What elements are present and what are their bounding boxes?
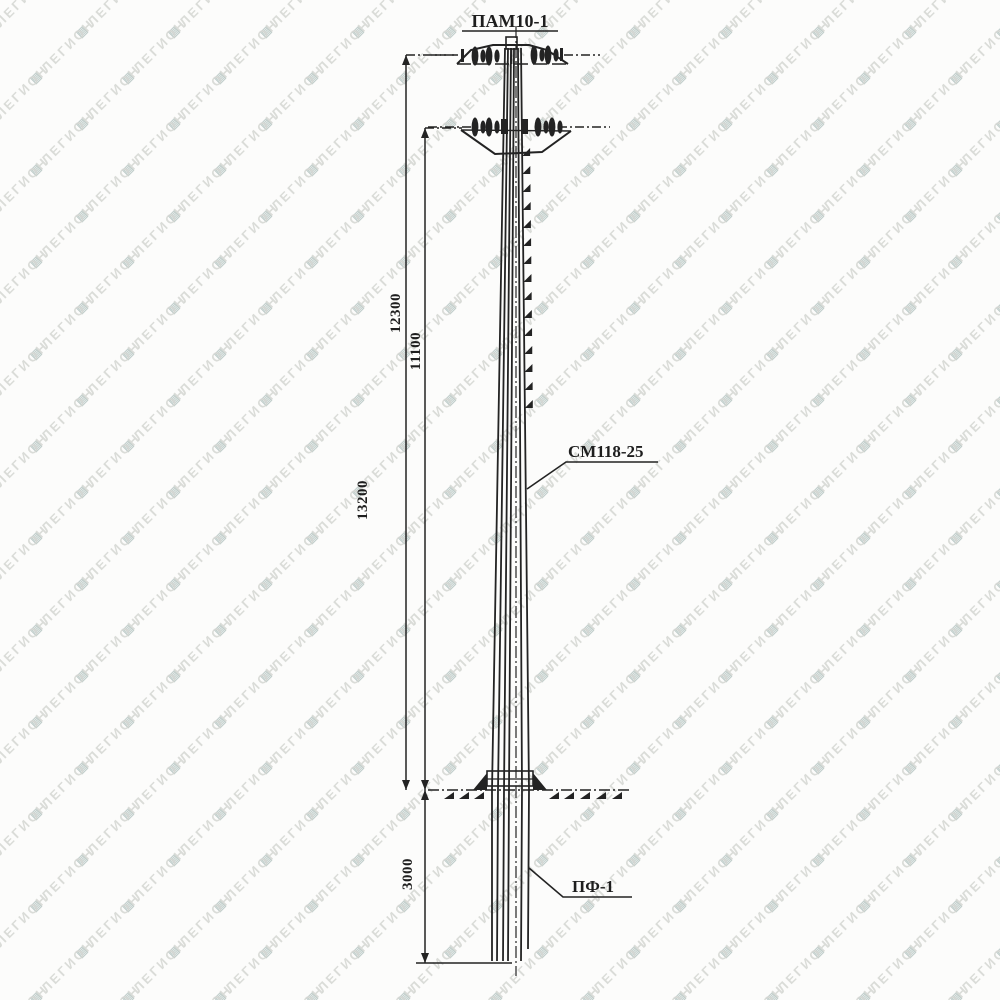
insulator-icon (472, 118, 486, 137)
arrow-up (421, 128, 429, 138)
pole-type-label: СМ118-25 (568, 442, 644, 461)
end-fitting (461, 49, 464, 62)
collar-wedge-right (533, 773, 547, 790)
step-bolt (523, 256, 531, 264)
step-bolt (522, 166, 530, 174)
insulator-icon (486, 47, 500, 66)
end-fitting (560, 48, 563, 61)
step-bolt (524, 328, 532, 336)
top-crossarm-label: ПАМ10-1 (472, 11, 549, 31)
insulator-icon (486, 118, 500, 137)
ground-hatch-tick (474, 792, 484, 799)
pole-line (518, 48, 522, 961)
step-bolt (524, 346, 532, 354)
arrow-down (421, 780, 429, 790)
insulator-icon (549, 118, 563, 137)
dim-text-11100: 11100 (408, 332, 424, 370)
step-bolt (523, 220, 531, 228)
step-bolt (523, 202, 531, 210)
step-bolt (524, 292, 532, 300)
ground-hatch-tick (564, 792, 574, 799)
ground-hatch-tick (444, 792, 454, 799)
pole-drawing: ПАМ10-1 СМ118-25 ПФ-1 12300 11100 13200 … (0, 0, 1000, 1000)
collar-wedge-left (473, 773, 487, 790)
arrow-down (421, 953, 429, 963)
step-bolt (524, 310, 532, 318)
clamp (501, 119, 508, 134)
insulator-icon (472, 47, 486, 66)
dim-text-12300: 12300 (388, 293, 404, 333)
clamp (521, 119, 528, 134)
ground-hatch-tick (580, 792, 590, 799)
ground-hatch-tick (612, 792, 622, 799)
step-bolt (525, 382, 533, 390)
dim-text-13200: 13200 (355, 480, 371, 520)
leaders (462, 31, 658, 897)
step-bolt (525, 400, 533, 408)
ground-level (428, 771, 632, 799)
foundation-label: ПФ-1 (572, 877, 614, 896)
pole-body (492, 26, 529, 976)
pin-cap (506, 37, 517, 49)
ground-hatch-tick (459, 792, 469, 799)
insulator-icon (545, 46, 559, 65)
arrow-up (402, 55, 410, 65)
step-bolt (523, 184, 531, 192)
insulator-icon (535, 118, 549, 137)
ground-hatch-tick (596, 792, 606, 799)
step-bolt (524, 364, 532, 372)
arrow-up (421, 790, 429, 800)
arrow-down (402, 780, 410, 790)
step-bolt (523, 238, 531, 246)
step-bolt (523, 274, 531, 282)
dim-text-3000: 3000 (400, 858, 416, 890)
leader-pole-label (527, 462, 658, 489)
ground-hatch-tick (549, 792, 559, 799)
ground-hatch (444, 792, 622, 799)
scanned-drawing-page: ▤ЛЕГИОН▤ЛЕГИОН▤ЛЕГИОН▤ЛЕГИОН▤ЛЕГИОН▤ЛЕГИ… (0, 0, 1000, 1000)
